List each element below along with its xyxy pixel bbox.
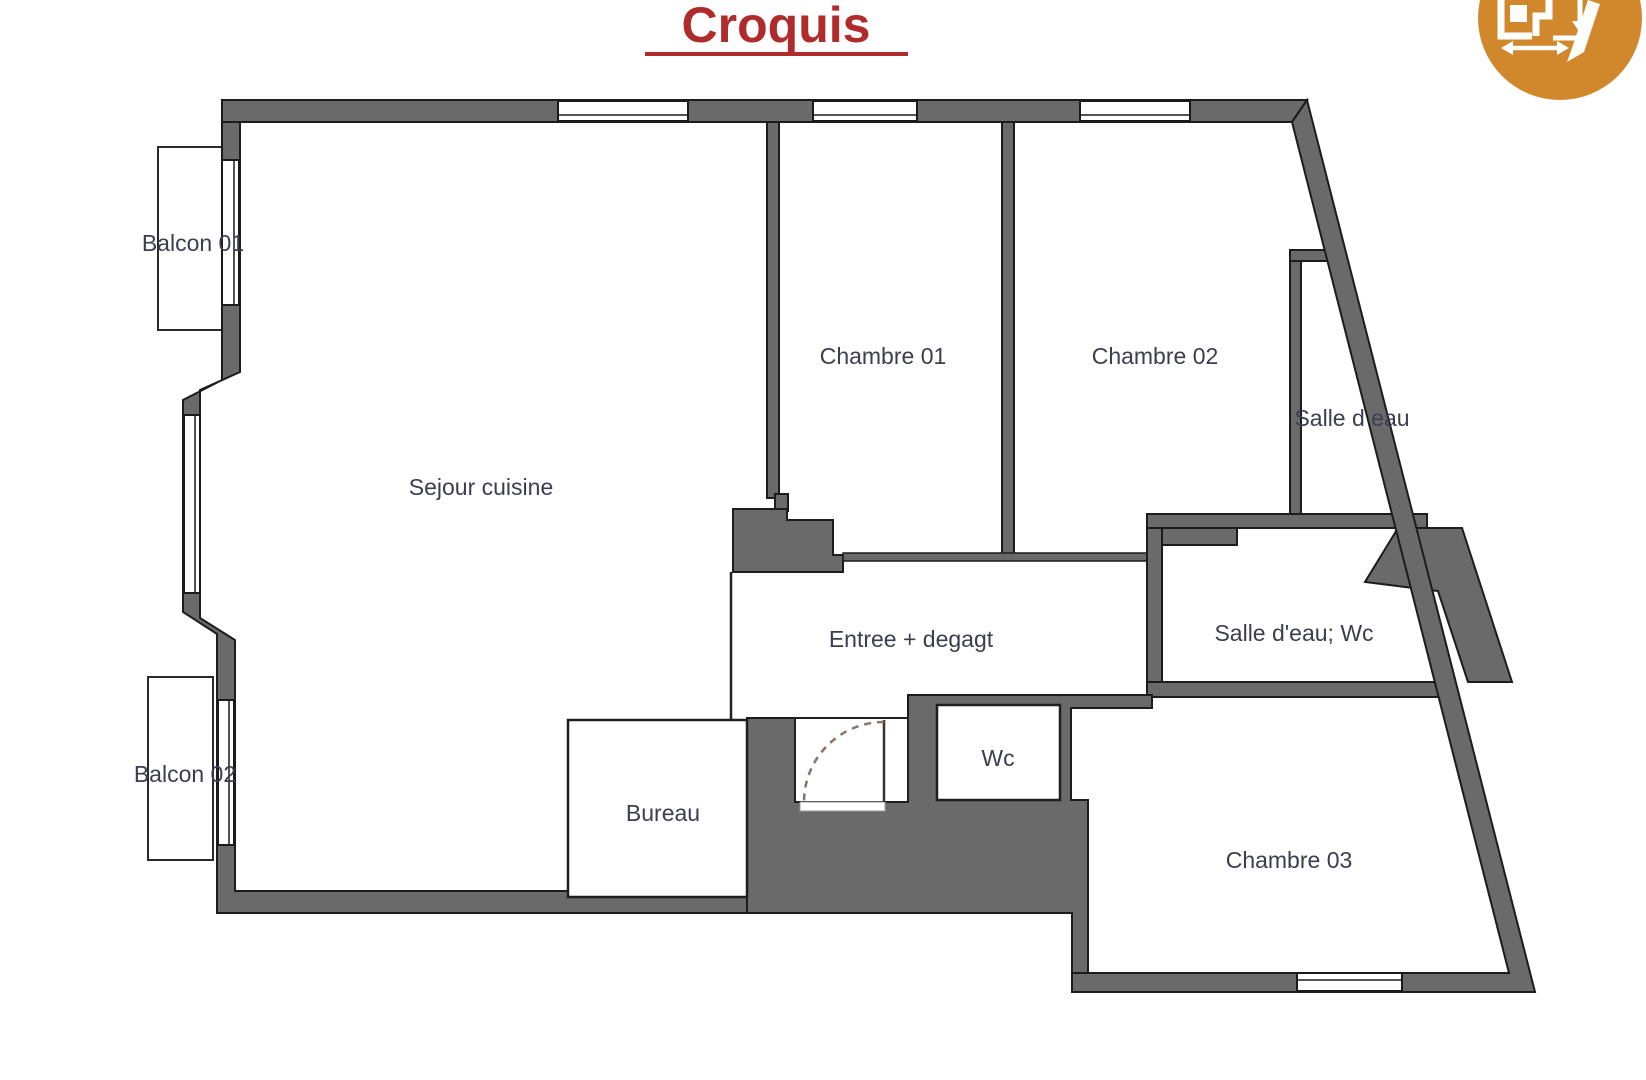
entrance-door [795,718,908,811]
wall-chambres-bottom [843,553,1150,561]
wall-chambre03-top [1147,682,1452,697]
logo-plan-square [1510,5,1527,22]
door-sill [800,802,885,811]
label-bureau: Bureau [626,800,700,826]
label-sejour: Sejour cuisine [409,474,553,500]
floorplan-page: Balcon 01 Balcon 02 Sejour cuisine Chamb… [0,0,1646,1080]
label-salle-d-eau-wc: Salle d'eau; Wc [1214,620,1373,646]
label-wc: Wc [981,745,1014,771]
wall-sejour-chambre01 [767,122,779,498]
label-chambre-01: Chambre 01 [820,343,947,369]
wall-sdewc-left [1147,528,1162,690]
wall-chambre01-chambre02 [1002,122,1014,559]
title-text: Croquis [682,0,871,53]
wall-block-entree-corner [733,509,843,572]
label-salle-d-eau: Salle d eau [1294,405,1409,431]
floorplan-measure-pencil-logo [1478,0,1642,100]
window-top-sejour [558,101,688,121]
window-top-chambre01 [813,101,917,121]
floorplan-canvas: Balcon 01 Balcon 02 Sejour cuisine Chamb… [0,0,1646,1080]
window-bay-sejour [184,415,200,593]
label-balcon-01: Balcon 01 [142,230,244,256]
door-recess [795,718,908,802]
label-chambre-03: Chambre 03 [1226,847,1353,873]
window-chambre03-bottom [1297,973,1402,991]
window-top-chambre02 [1080,101,1190,121]
wall-salle-d-eau-left [1290,250,1301,520]
wall-sdewc-top-band [1147,514,1427,528]
label-entree: Entree + degagt [829,626,994,652]
label-chambre-02: Chambre 02 [1092,343,1219,369]
label-balcon-02: Balcon 02 [134,761,236,787]
page-title: Croquis [645,0,908,54]
